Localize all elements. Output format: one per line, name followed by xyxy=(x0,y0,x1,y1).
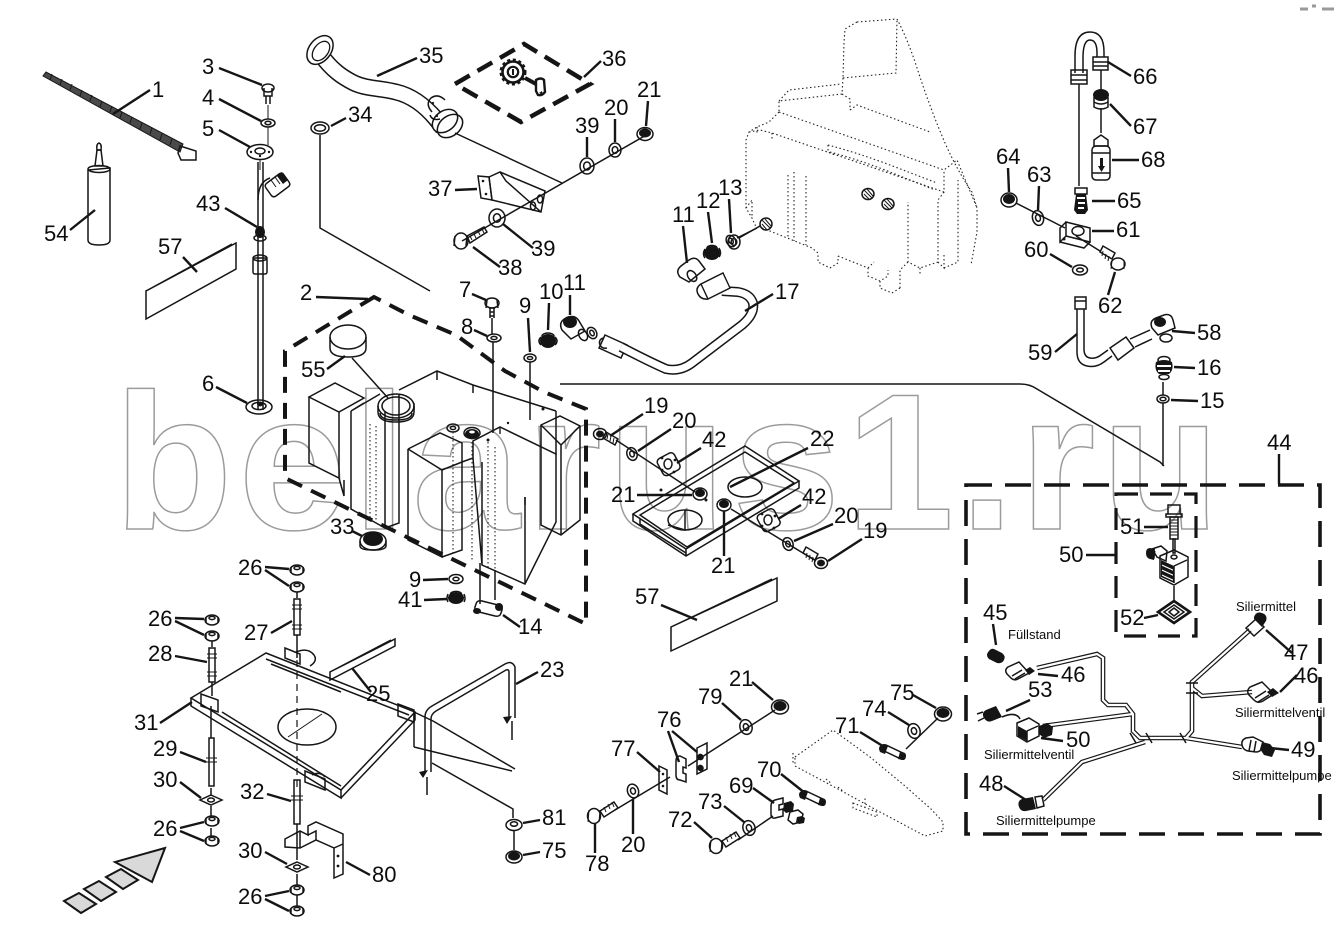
svg-text:47: 47 xyxy=(1284,640,1308,665)
svg-text:38: 38 xyxy=(498,255,522,280)
svg-text:53: 53 xyxy=(1028,677,1052,702)
svg-text:50: 50 xyxy=(1059,542,1083,567)
svg-text:9: 9 xyxy=(519,293,531,318)
svg-text:79: 79 xyxy=(698,684,722,709)
svg-text:21: 21 xyxy=(637,77,661,102)
svg-text:34: 34 xyxy=(348,102,372,127)
svg-text:5: 5 xyxy=(202,116,214,141)
svg-text:68: 68 xyxy=(1141,147,1165,172)
svg-text:30: 30 xyxy=(238,838,262,863)
svg-text:58: 58 xyxy=(1197,320,1221,345)
svg-text:46: 46 xyxy=(1294,663,1318,688)
svg-text:2: 2 xyxy=(300,280,312,305)
svg-text:54: 54 xyxy=(44,221,68,246)
svg-text:43: 43 xyxy=(196,191,220,216)
svg-text:81: 81 xyxy=(542,805,566,830)
svg-text:62: 62 xyxy=(1098,293,1122,318)
svg-text:30: 30 xyxy=(153,767,177,792)
svg-text:35: 35 xyxy=(419,43,443,68)
svg-text:12: 12 xyxy=(696,188,720,213)
svg-text:46: 46 xyxy=(1061,662,1085,687)
svg-text:Füllstand: Füllstand xyxy=(1008,627,1061,642)
svg-text:22: 22 xyxy=(810,426,834,451)
svg-text:4: 4 xyxy=(202,85,214,110)
svg-text:39: 39 xyxy=(531,236,555,261)
svg-text:26: 26 xyxy=(238,884,262,909)
svg-text:7: 7 xyxy=(459,277,471,302)
svg-text:20: 20 xyxy=(604,95,628,120)
svg-text:75: 75 xyxy=(890,680,914,705)
svg-text:10: 10 xyxy=(539,279,563,304)
svg-text:11: 11 xyxy=(672,202,695,227)
svg-text:11: 11 xyxy=(563,270,586,295)
svg-text:64: 64 xyxy=(996,144,1020,169)
svg-text:63: 63 xyxy=(1027,162,1051,187)
svg-text:27: 27 xyxy=(244,620,268,645)
svg-text:65: 65 xyxy=(1117,188,1141,213)
svg-text:23: 23 xyxy=(540,657,564,682)
svg-text:57: 57 xyxy=(158,234,182,259)
svg-text:33: 33 xyxy=(330,514,354,539)
svg-text:26: 26 xyxy=(148,606,172,631)
svg-text:78: 78 xyxy=(585,851,609,876)
svg-text:52: 52 xyxy=(1120,605,1144,630)
svg-text:6: 6 xyxy=(202,371,214,396)
svg-text:48: 48 xyxy=(979,771,1003,796)
svg-text:32: 32 xyxy=(240,779,264,804)
svg-text:19: 19 xyxy=(863,518,887,543)
svg-text:Siliermittel: Siliermittel xyxy=(1236,599,1296,614)
svg-text:45: 45 xyxy=(983,600,1007,625)
svg-text:20: 20 xyxy=(672,408,696,433)
svg-text:14: 14 xyxy=(518,614,542,639)
svg-text:74: 74 xyxy=(862,696,886,721)
svg-text:39: 39 xyxy=(575,113,599,138)
svg-text:61: 61 xyxy=(1116,217,1140,242)
svg-text:80: 80 xyxy=(372,862,396,887)
svg-text:76: 76 xyxy=(657,707,681,732)
svg-text:31: 31 xyxy=(134,710,158,735)
svg-text:75: 75 xyxy=(542,838,566,863)
svg-text:Siliermittelpumpe: Siliermittelpumpe xyxy=(1232,768,1332,783)
svg-text:49: 49 xyxy=(1291,737,1315,762)
svg-text:72: 72 xyxy=(668,807,692,832)
svg-text:67: 67 xyxy=(1133,114,1157,139)
svg-text:21: 21 xyxy=(611,482,635,507)
svg-text:42: 42 xyxy=(702,427,726,452)
svg-text:Siliermittelventil: Siliermittelventil xyxy=(1235,705,1325,720)
svg-text:77: 77 xyxy=(611,736,635,761)
svg-text:37: 37 xyxy=(428,176,452,201)
svg-text:20: 20 xyxy=(621,832,645,857)
svg-text:51: 51 xyxy=(1120,514,1144,539)
svg-text:66: 66 xyxy=(1133,64,1157,89)
svg-text:55: 55 xyxy=(301,357,325,382)
svg-text:21: 21 xyxy=(729,666,753,691)
svg-text:1: 1 xyxy=(152,77,164,102)
svg-text:26: 26 xyxy=(153,816,177,841)
svg-text:3: 3 xyxy=(202,54,214,79)
svg-text:60: 60 xyxy=(1024,237,1048,262)
svg-text:8: 8 xyxy=(461,314,473,339)
svg-text:28: 28 xyxy=(148,641,172,666)
svg-text:73: 73 xyxy=(698,789,722,814)
svg-text:44: 44 xyxy=(1267,430,1291,455)
svg-text:19: 19 xyxy=(644,393,668,418)
svg-text:69: 69 xyxy=(729,773,753,798)
svg-text:42: 42 xyxy=(802,484,826,509)
svg-text:16: 16 xyxy=(1197,355,1221,380)
svg-text:36: 36 xyxy=(602,46,626,71)
svg-text:20: 20 xyxy=(834,503,858,528)
svg-text:15: 15 xyxy=(1200,388,1224,413)
svg-text:29: 29 xyxy=(153,736,177,761)
svg-text:17: 17 xyxy=(775,279,799,304)
svg-text:25: 25 xyxy=(366,681,390,706)
svg-text:21: 21 xyxy=(711,553,735,578)
svg-text:Siliermittelpumpe: Siliermittelpumpe xyxy=(996,813,1096,828)
svg-text:Siliermittelventil: Siliermittelventil xyxy=(984,747,1074,762)
svg-text:13: 13 xyxy=(718,175,742,200)
svg-text:57: 57 xyxy=(635,584,659,609)
svg-text:26: 26 xyxy=(238,555,262,580)
svg-text:41: 41 xyxy=(398,587,422,612)
svg-text:70: 70 xyxy=(757,757,781,782)
svg-text:59: 59 xyxy=(1028,340,1052,365)
svg-text:71: 71 xyxy=(835,713,859,738)
